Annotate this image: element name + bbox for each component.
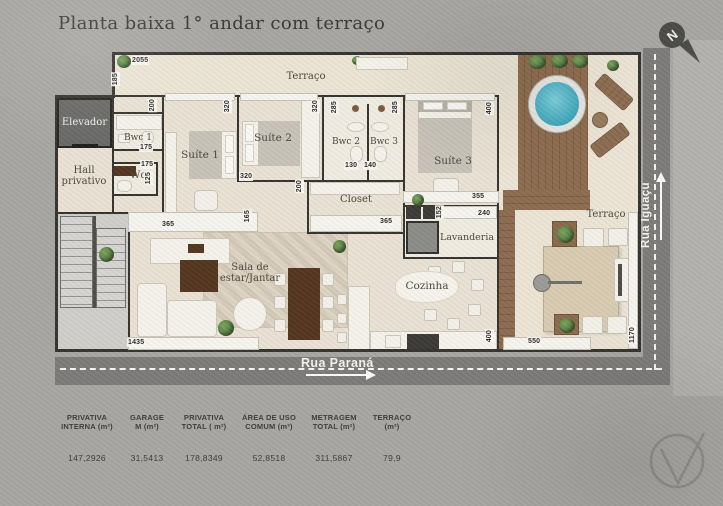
street-arrowhead-iguacu — [656, 172, 666, 182]
plant — [572, 55, 588, 68]
wall — [112, 194, 158, 196]
dimension-label: 175 — [140, 160, 154, 169]
dimension-label: 1170 — [628, 326, 637, 344]
cooktop — [407, 334, 439, 349]
umbrella-arm — [548, 281, 582, 284]
bathtub — [116, 115, 162, 130]
toilet — [374, 146, 387, 162]
dining-chair — [322, 296, 334, 309]
dimension-label: 200 — [148, 98, 157, 112]
street-arrow-parana — [306, 374, 368, 376]
stair-flight — [96, 228, 126, 308]
table-column: GARAGEM (m²) 31,5413 — [126, 413, 168, 463]
window-sill — [503, 337, 591, 350]
terrace-chair — [608, 228, 628, 246]
window-sill — [128, 337, 259, 350]
wall — [156, 162, 158, 196]
floor-plan-page: Planta baixa 1° andar com terraço N Rua … — [0, 0, 723, 506]
wall — [128, 212, 130, 352]
dimension-label: 285 — [330, 100, 339, 114]
dimension-label: 320 — [223, 99, 232, 113]
shower-head — [352, 105, 359, 112]
dimension-label: 152 — [435, 205, 444, 219]
table-column: PRIVATIVAINTERNA (m²) 147,2926 — [58, 413, 116, 463]
street-arrow-iguacu — [660, 182, 662, 240]
room-label-suite3: Suíte 3 — [424, 156, 482, 167]
page-title: Planta baixa 1° andar com terraço — [58, 13, 385, 34]
wall — [307, 232, 405, 234]
stool — [337, 313, 347, 324]
kitchen-island — [348, 286, 370, 350]
elevator-door — [72, 144, 98, 148]
sofa — [167, 300, 217, 337]
stool — [337, 332, 347, 343]
dimension-label: 320 — [239, 172, 253, 181]
wall — [403, 257, 499, 259]
dimension-label: 165 — [243, 209, 252, 223]
terrace-bench — [356, 57, 408, 70]
wall — [497, 95, 499, 352]
washer — [406, 206, 421, 219]
dimension-label: 320 — [311, 99, 320, 113]
table-column: PRIVATIVATOTAL ( m²) 178,8349 — [178, 413, 230, 463]
window-sill — [405, 93, 495, 101]
dimension-label: 130 — [344, 161, 358, 170]
room-label-sala: Sala de estar/Jantar — [215, 262, 285, 284]
plant — [557, 226, 574, 243]
plant — [551, 54, 568, 68]
dimension-label: 365 — [379, 217, 393, 226]
terrace-chair — [582, 316, 603, 334]
table-value: 147,2926 — [58, 453, 116, 463]
kitchen-chair — [424, 309, 437, 321]
laundry-machine — [406, 221, 439, 254]
toilet — [117, 180, 132, 192]
road-centerline-right — [654, 54, 656, 370]
dimension-label: 285 — [391, 100, 400, 114]
sofa — [137, 283, 167, 337]
plant — [333, 240, 346, 253]
deck-strip — [499, 210, 515, 350]
room-label-lavanderia: Lavanderia — [437, 232, 497, 243]
armchair — [194, 190, 218, 211]
street-arrowhead-parana — [366, 370, 376, 380]
cutting-board — [188, 244, 204, 253]
plant — [529, 55, 546, 69]
street-label-iguacu: Rua Iguaçu — [640, 168, 652, 248]
street-label-parana: Rua Paraná — [301, 356, 374, 370]
dimension-label: 400 — [485, 101, 494, 115]
wall — [322, 95, 324, 180]
plant — [607, 60, 619, 71]
pillow — [423, 102, 443, 110]
plant — [218, 320, 234, 336]
pool — [535, 82, 579, 126]
dimension-label: 2055 — [131, 56, 149, 65]
exterior-notch — [55, 50, 113, 96]
deck-band — [503, 190, 590, 210]
table-column: ÁREA DE USOCOMUM (m²) 52,8518 — [240, 413, 298, 463]
pillow — [245, 144, 254, 162]
dimension-label: 185 — [111, 72, 120, 86]
terrace-chair — [583, 228, 604, 247]
terrace-chair — [607, 316, 627, 334]
pillow — [447, 102, 467, 110]
dining-chair — [322, 319, 334, 332]
kitchen-chair — [447, 318, 460, 330]
sink — [347, 122, 365, 132]
dimension-label: 125 — [144, 171, 153, 185]
table-value: 52,8518 — [240, 453, 298, 463]
room-label-suite1: Suíte 1 — [171, 150, 229, 161]
wall — [112, 112, 164, 114]
plant — [117, 55, 131, 68]
wall — [403, 95, 405, 259]
shower-head — [378, 105, 385, 112]
window-sill — [240, 93, 318, 101]
planter-box — [554, 314, 579, 335]
room-label-terraco-top: Terraço — [280, 71, 332, 82]
dining-chair — [274, 319, 286, 332]
balcony-ledge — [128, 212, 258, 232]
stair-rail — [93, 216, 96, 308]
dining-chair — [322, 273, 334, 286]
dimension-label: 355 — [471, 192, 485, 201]
table-value: 178,8349 — [178, 453, 230, 463]
sink — [371, 122, 389, 132]
dimension-label: 365 — [161, 220, 175, 229]
table-column: TERRAÇO(m²) 79,9 — [370, 413, 414, 463]
room-label-closet: Closet — [335, 194, 377, 205]
room-label-elevador: Elevador — [57, 117, 112, 128]
wall — [638, 52, 641, 352]
dimension-label: 200 — [295, 179, 304, 193]
dining-chair — [274, 296, 286, 309]
wall — [237, 180, 405, 182]
sink — [385, 335, 401, 348]
wall — [307, 180, 309, 234]
planter-box — [552, 221, 577, 247]
wall — [112, 149, 164, 151]
side-table — [592, 112, 608, 128]
measurements-table: PRIVATIVAINTERNA (m²) 147,2926 GARAGEM (… — [58, 413, 424, 463]
round-armchair — [233, 297, 267, 331]
room-label-bwc2: Bwc 2 — [328, 137, 364, 148]
wall — [237, 95, 239, 182]
logo-icon — [644, 425, 714, 495]
coffee-table — [180, 260, 218, 292]
stair-flight — [60, 216, 93, 308]
table-value: 31,5413 — [126, 453, 168, 463]
table-value: 79,9 — [370, 453, 414, 463]
north-arrow-icon: N — [648, 14, 708, 66]
room-label-terraco-right: Terraço — [580, 209, 632, 220]
dimension-label: 400 — [485, 329, 494, 343]
wardrobe — [165, 132, 177, 216]
room-label-hall: Hall privativo — [57, 165, 111, 187]
dimension-label: 550 — [527, 337, 541, 346]
plant — [412, 194, 424, 206]
dimension-label: 1435 — [127, 338, 145, 347]
dimension-label: 175 — [139, 143, 153, 152]
room-label-cozinha: Cozinha — [398, 281, 456, 292]
stool — [337, 294, 347, 305]
wall — [113, 52, 640, 55]
table-value: 311,5867 — [308, 453, 360, 463]
kitchen-chair — [452, 261, 465, 273]
plant — [559, 318, 575, 333]
kitchen-chair — [471, 279, 484, 291]
dimension-label: 240 — [477, 209, 491, 218]
table-column: METRAGEMTOTAL (m²) 311,5867 — [308, 413, 360, 463]
table-slat — [618, 264, 622, 296]
dining-table — [288, 268, 320, 340]
dimension-label: 140 — [363, 161, 377, 170]
wall — [55, 212, 130, 214]
plant — [99, 247, 114, 262]
room-label-bwc3: Bwc 3 — [366, 137, 402, 148]
toilet — [350, 146, 363, 162]
room-label-suite2: Suíte 2 — [244, 133, 302, 144]
kitchen-chair — [468, 304, 481, 316]
sidewalk — [673, 40, 723, 396]
